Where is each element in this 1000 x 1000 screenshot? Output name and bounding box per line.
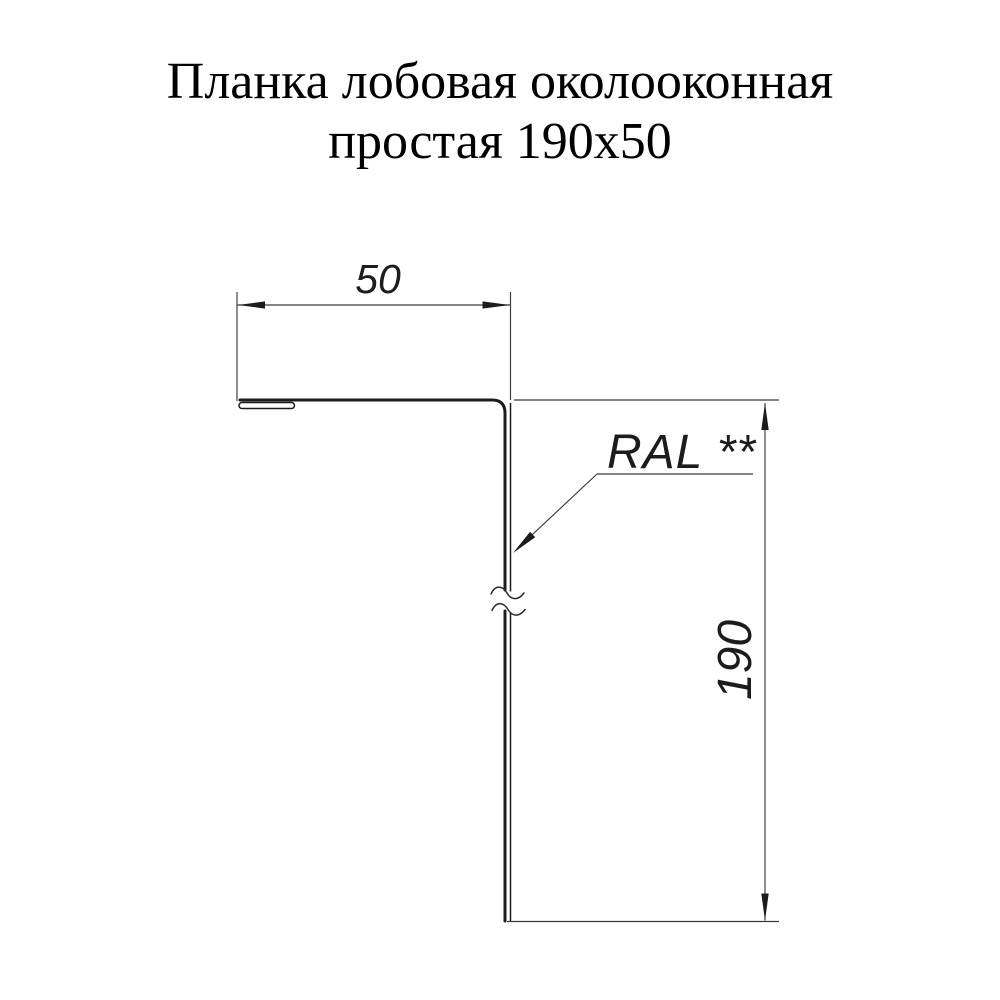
dim-50-arrow-left [238, 301, 265, 308]
dim-190-arrow-down [761, 894, 768, 921]
profile-outer-face-upper [240, 400, 505, 590]
drawing-page: Планка лобовая околооконная простая 190х… [0, 0, 1000, 1000]
ral-leader-arrow [513, 532, 535, 553]
ral-label: RAL ** [607, 426, 757, 479]
profile-outline [239, 400, 511, 921]
break-wave-bottom [492, 604, 525, 616]
ral-leader: RAL ** [513, 426, 757, 553]
dim-190-arrow-up [761, 403, 768, 430]
dimension-50: 50 [237, 256, 511, 401]
dim-50-value: 50 [355, 256, 401, 302]
dim-50-arrow-right [483, 301, 510, 308]
profile-hem [239, 403, 295, 409]
dim-190-value: 190 [709, 620, 762, 700]
break-wave-top [491, 587, 524, 599]
profile-drawing: 50 190 RAL ** [0, 0, 1000, 1000]
break-symbol [491, 587, 525, 615]
